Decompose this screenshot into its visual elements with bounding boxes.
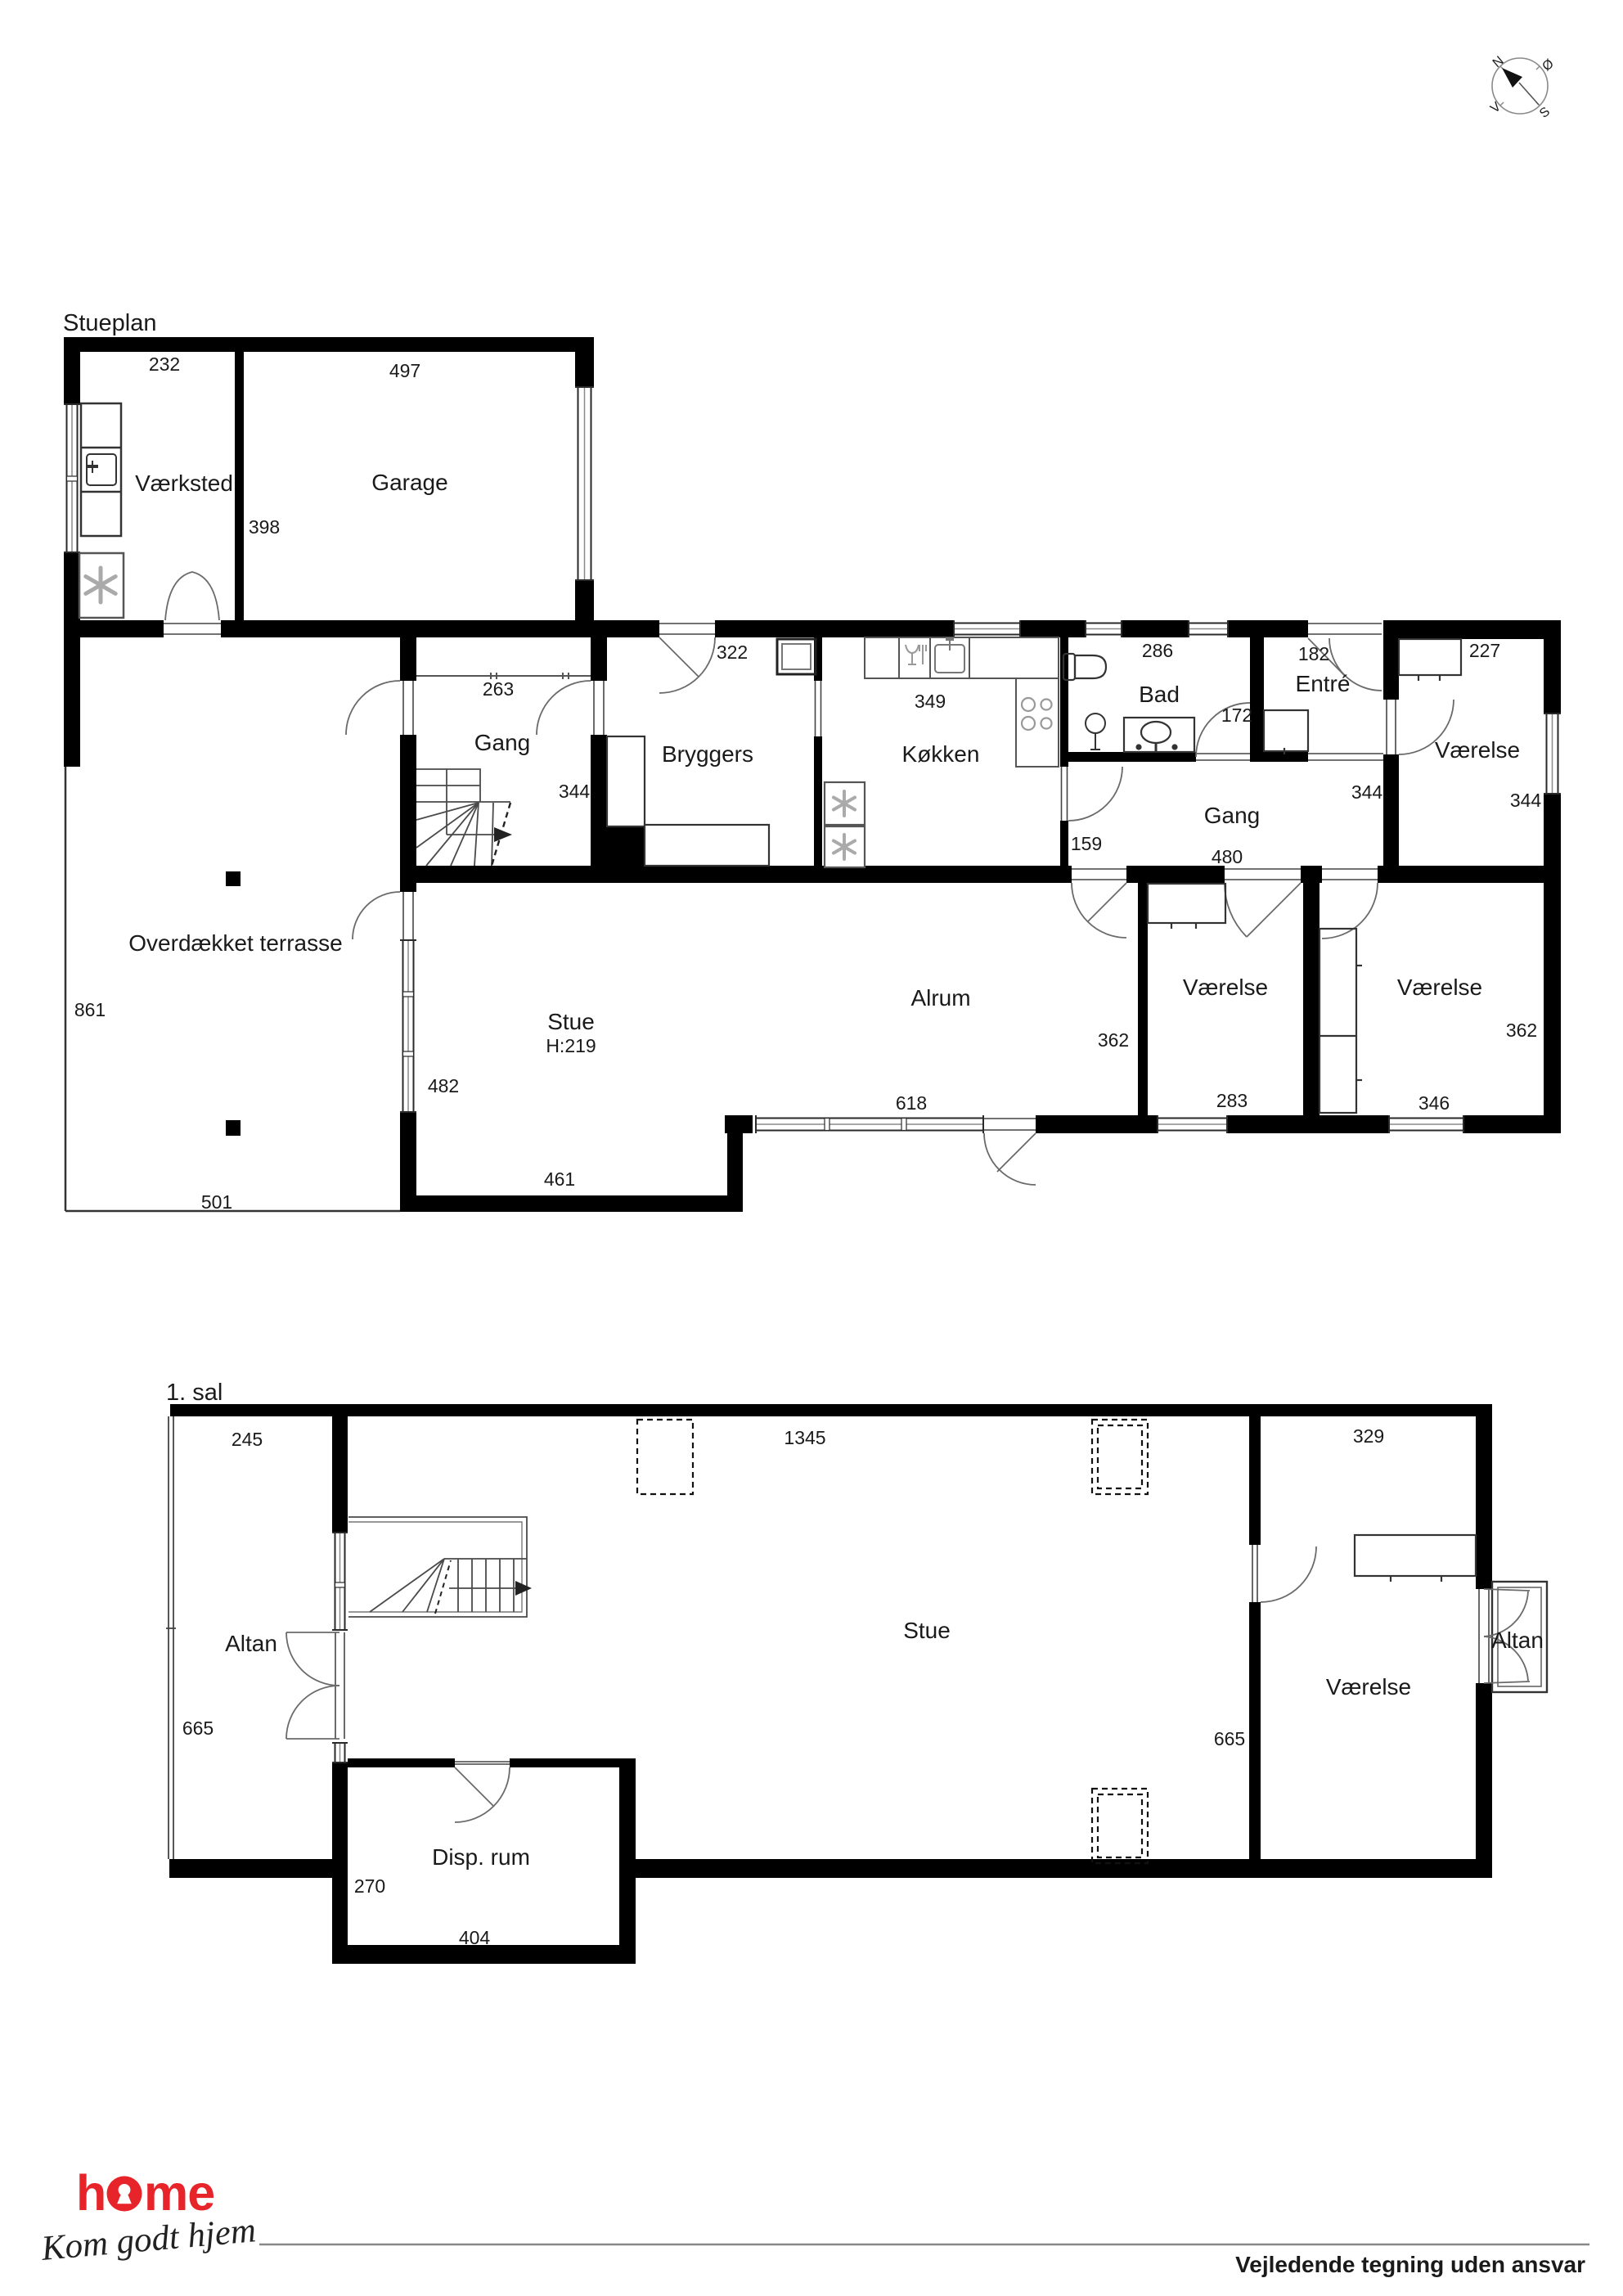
svg-text:501: 501 bbox=[201, 1191, 232, 1213]
svg-text:Kom godt hjem: Kom godt hjem bbox=[39, 2211, 258, 2268]
svg-text:482: 482 bbox=[428, 1075, 459, 1096]
svg-text:286: 286 bbox=[1142, 640, 1173, 661]
svg-text:Overdækket terrasse: Overdækket terrasse bbox=[128, 930, 342, 956]
svg-text:Altan: Altan bbox=[1491, 1627, 1544, 1653]
svg-text:227: 227 bbox=[1469, 640, 1500, 661]
svg-text:Garage: Garage bbox=[371, 470, 447, 495]
svg-text:263: 263 bbox=[483, 678, 514, 700]
svg-text:398: 398 bbox=[249, 516, 280, 538]
svg-text:404: 404 bbox=[459, 1927, 491, 1948]
svg-text:me: me bbox=[144, 2165, 214, 2221]
svg-text:N: N bbox=[1490, 54, 1507, 70]
svg-text:Entré: Entré bbox=[1296, 671, 1351, 696]
svg-text:Altan: Altan bbox=[225, 1631, 277, 1656]
svg-text:497: 497 bbox=[389, 360, 420, 381]
svg-text:Bryggers: Bryggers bbox=[662, 741, 753, 767]
svg-text:Alrum: Alrum bbox=[910, 985, 970, 1011]
svg-text:245: 245 bbox=[232, 1429, 263, 1450]
svg-text:Gang: Gang bbox=[474, 730, 531, 755]
svg-text:322: 322 bbox=[717, 642, 748, 663]
svg-text:Ø: Ø bbox=[1540, 56, 1556, 74]
svg-text:329: 329 bbox=[1353, 1425, 1384, 1447]
svg-text:Køkken: Køkken bbox=[902, 741, 980, 767]
svg-text:861: 861 bbox=[74, 999, 106, 1020]
svg-text:665: 665 bbox=[1214, 1728, 1245, 1749]
svg-text:232: 232 bbox=[149, 353, 180, 375]
svg-text:349: 349 bbox=[915, 691, 946, 712]
svg-text:270: 270 bbox=[354, 1875, 385, 1897]
svg-text:V: V bbox=[1488, 100, 1504, 116]
svg-text:362: 362 bbox=[1506, 1020, 1537, 1041]
svg-text:Vejledende tegning uden ansvar: Vejledende tegning uden ansvar bbox=[1235, 2252, 1585, 2277]
svg-text:1. sal: 1. sal bbox=[166, 1380, 223, 1406]
svg-text:Værksted: Værksted bbox=[135, 470, 233, 496]
svg-text:344: 344 bbox=[1510, 790, 1542, 811]
svg-text:344: 344 bbox=[559, 781, 591, 802]
svg-text:Disp. rum: Disp. rum bbox=[432, 1844, 530, 1870]
svg-text:Stue: Stue bbox=[903, 1618, 951, 1643]
svg-text:1345: 1345 bbox=[784, 1427, 825, 1448]
svg-text:Værelse: Værelse bbox=[1397, 975, 1482, 1000]
svg-text:182: 182 bbox=[1298, 643, 1329, 664]
svg-text:Værelse: Værelse bbox=[1183, 975, 1268, 1000]
svg-text:Værelse: Værelse bbox=[1435, 737, 1520, 763]
svg-text:159: 159 bbox=[1071, 833, 1102, 854]
svg-text:618: 618 bbox=[896, 1092, 927, 1114]
svg-text:Værelse: Værelse bbox=[1326, 1674, 1411, 1699]
svg-text:461: 461 bbox=[544, 1168, 575, 1190]
svg-text:H:219: H:219 bbox=[546, 1035, 596, 1056]
svg-text:Stue: Stue bbox=[547, 1009, 595, 1034]
svg-text:362: 362 bbox=[1098, 1029, 1129, 1051]
svg-text:Bad: Bad bbox=[1139, 682, 1180, 707]
svg-text:480: 480 bbox=[1212, 846, 1243, 867]
svg-text:S: S bbox=[1537, 105, 1553, 121]
svg-text:346: 346 bbox=[1418, 1092, 1450, 1114]
svg-text:Gang: Gang bbox=[1204, 803, 1261, 828]
svg-text:172: 172 bbox=[1221, 705, 1252, 726]
svg-text:665: 665 bbox=[182, 1717, 214, 1739]
svg-text:Stueplan: Stueplan bbox=[63, 310, 157, 336]
svg-text:h: h bbox=[76, 2165, 106, 2221]
svg-text:283: 283 bbox=[1216, 1090, 1248, 1111]
svg-text:344: 344 bbox=[1351, 781, 1383, 803]
